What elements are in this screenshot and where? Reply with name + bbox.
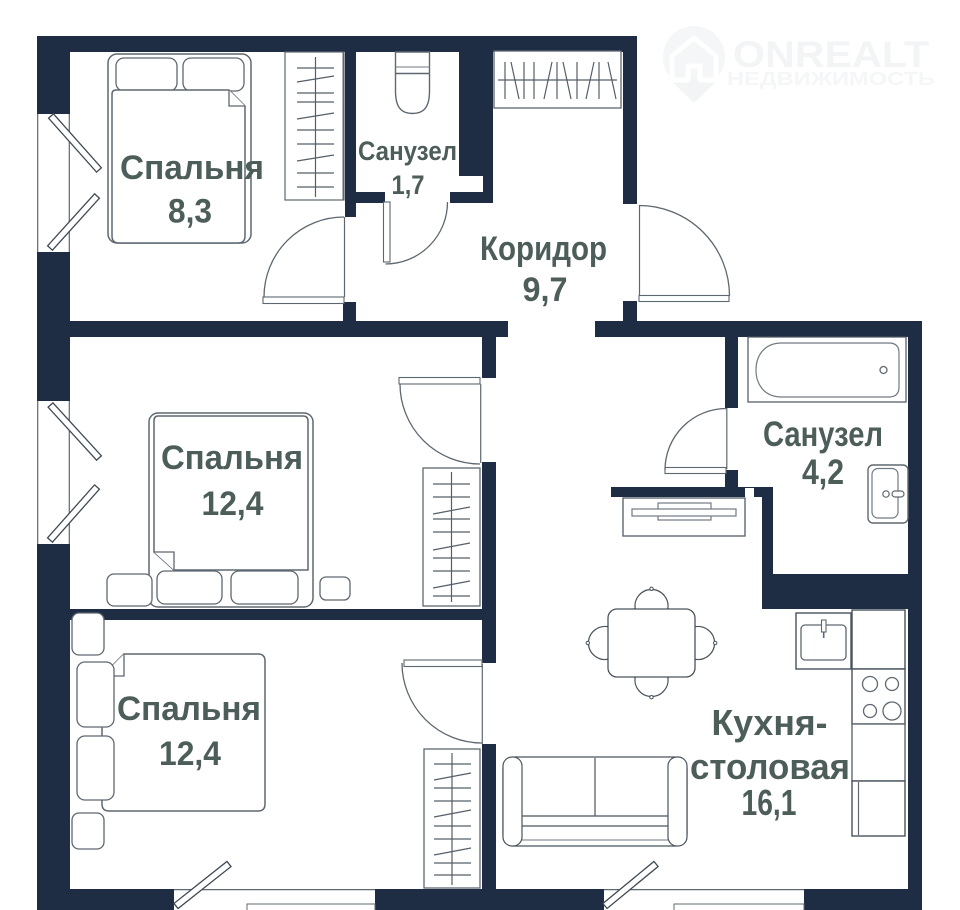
svg-text:Санузел: Санузел [358,136,457,166]
svg-text:Коридор: Коридор [480,230,607,268]
svg-text:4,2: 4,2 [802,453,844,492]
svg-text:Санузел: Санузел [763,415,883,454]
svg-text:1,7: 1,7 [392,170,425,200]
svg-text:Спальня: Спальня [161,439,303,477]
svg-text:НЕДВИЖИМОСТЬ: НЕДВИЖИМОСТЬ [727,69,935,89]
svg-text:Спальня: Спальня [117,690,261,728]
svg-text:12,4: 12,4 [159,735,221,773]
svg-text:16,1: 16,1 [742,782,797,823]
svg-text:Кухня-: Кухня- [712,702,828,743]
svg-text:столовая: столовая [690,746,850,787]
svg-text:12,4: 12,4 [202,485,264,523]
svg-text:9,7: 9,7 [523,271,568,309]
svg-text:8,3: 8,3 [168,193,212,231]
svg-text:Спальня: Спальня [120,149,264,187]
